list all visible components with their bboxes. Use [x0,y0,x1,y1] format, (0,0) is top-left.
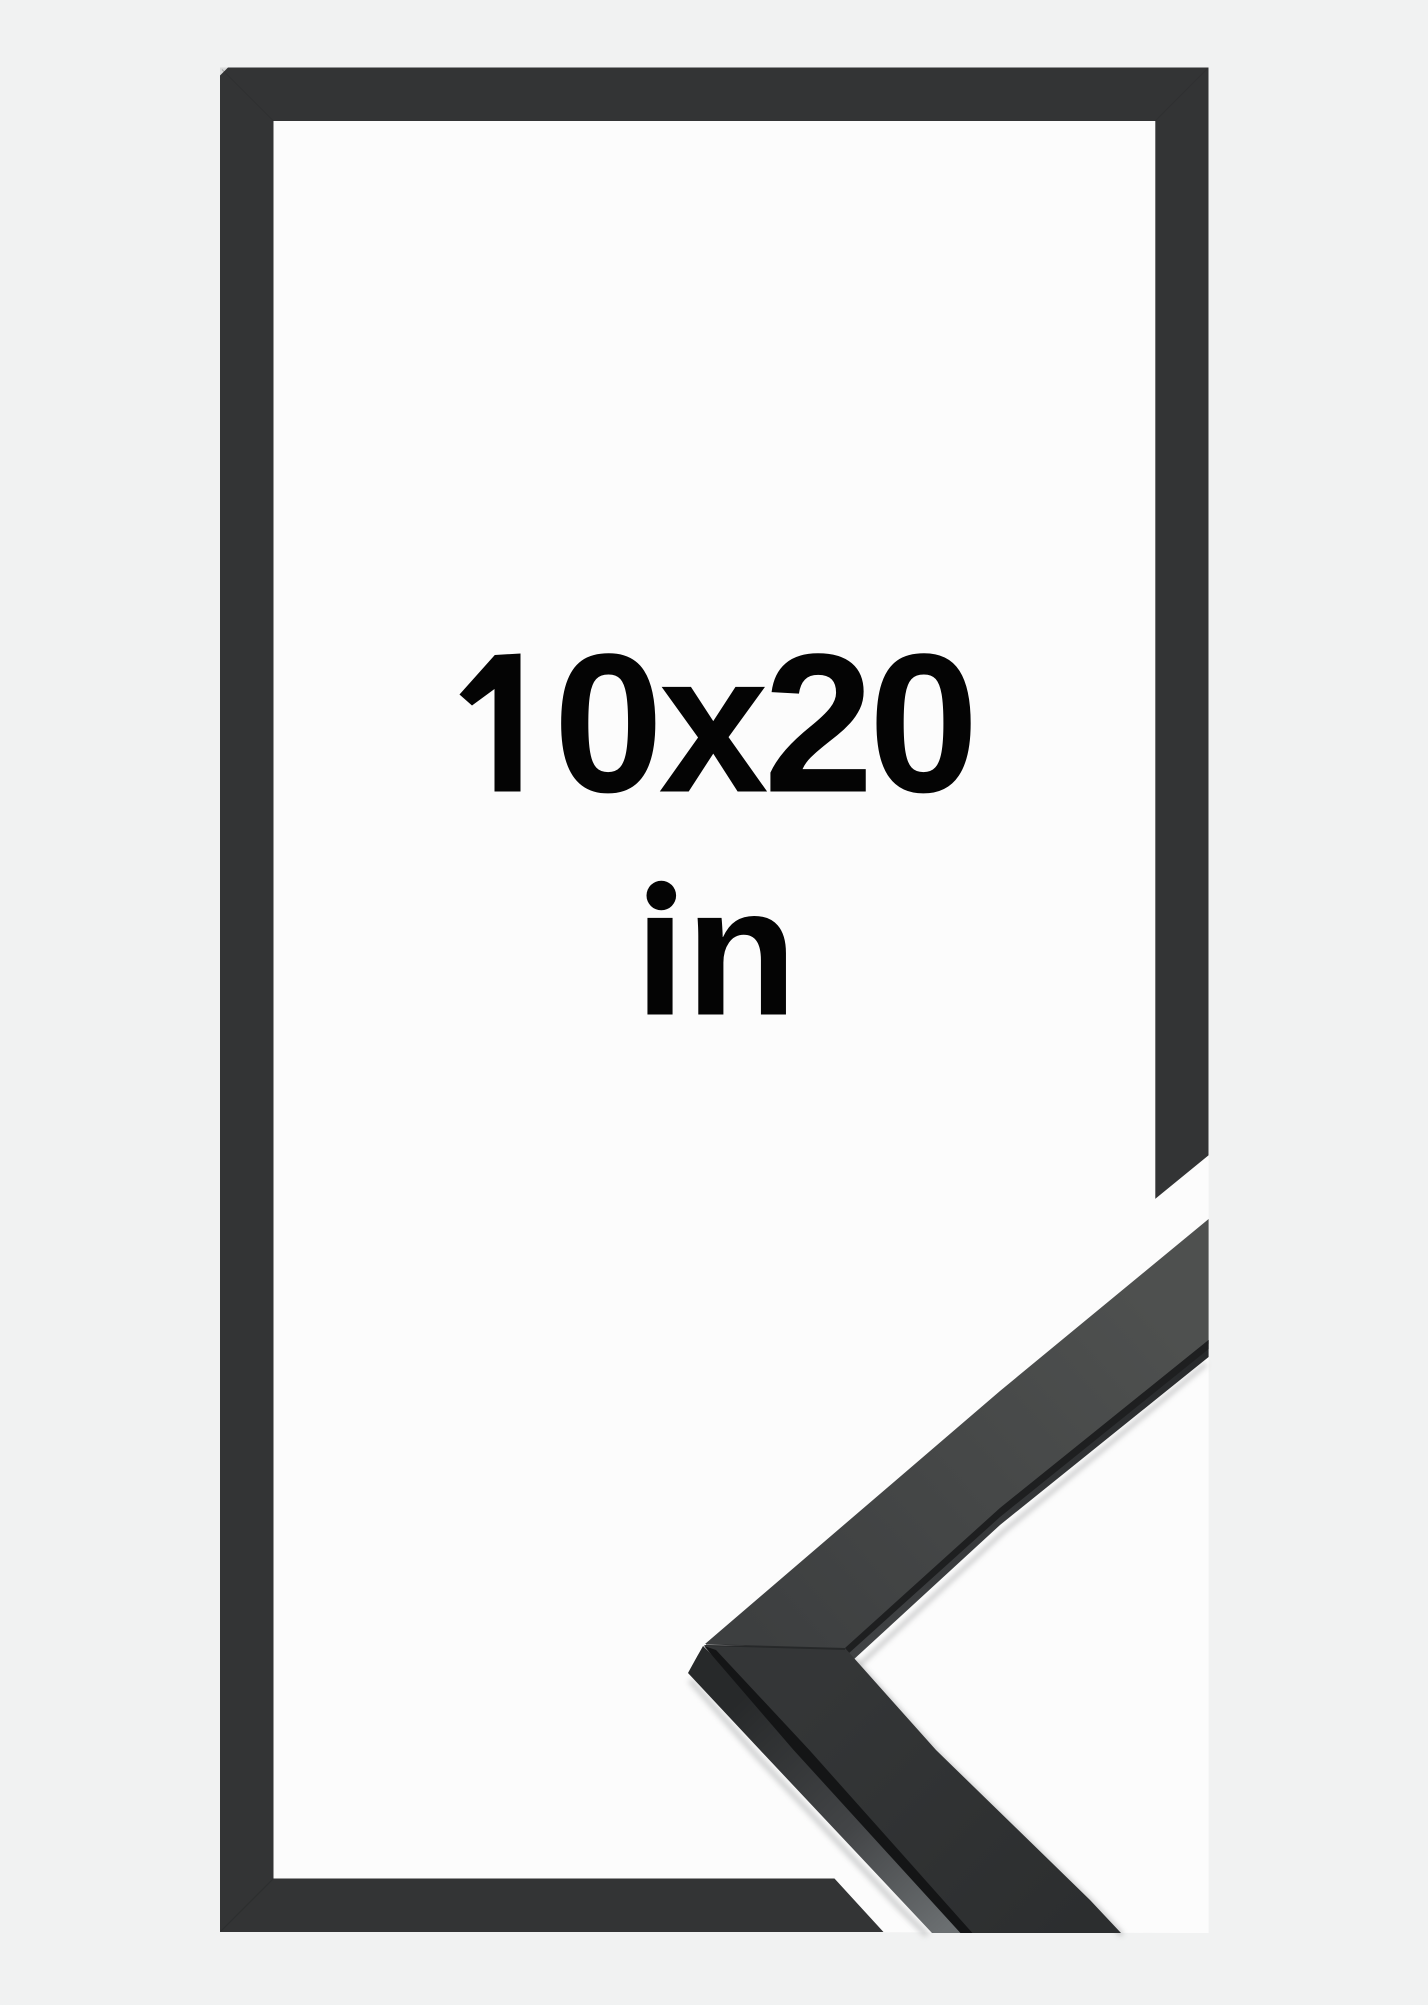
svg-text:10x20: 10x20 [448,613,974,834]
